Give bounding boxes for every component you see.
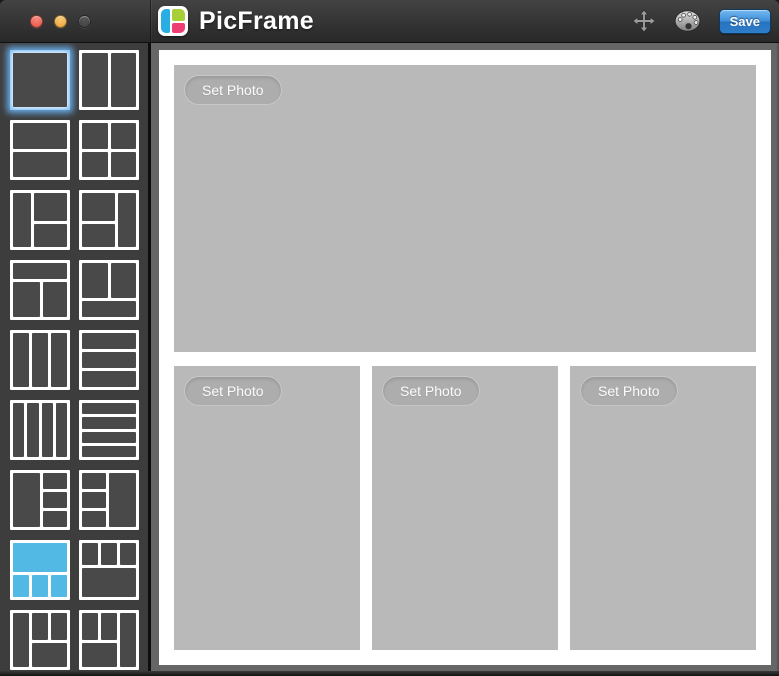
layout-cell	[82, 152, 108, 178]
layout-cell	[82, 417, 136, 428]
layout-cell	[34, 193, 67, 221]
layout-cell	[42, 403, 53, 457]
layout-cell	[109, 473, 136, 527]
layout-cell	[82, 543, 98, 565]
layout-cell	[82, 643, 117, 667]
layout-cell	[34, 224, 67, 247]
layout-cell	[82, 193, 115, 221]
layout-cell	[13, 543, 67, 572]
titlebar-divider	[150, 0, 151, 42]
layout-cell	[43, 282, 67, 317]
layout-cell	[13, 53, 67, 107]
layout-cell	[13, 193, 31, 247]
layout-thumbnail-three-rows[interactable]	[79, 330, 139, 390]
picframe-window: PicFrame	[0, 0, 779, 676]
logo-bottom-right-segment	[172, 23, 185, 33]
layout-cell	[13, 123, 67, 149]
bottom-placeholder-row: Set Photo Set Photo Set Photo	[174, 366, 756, 650]
layout-cell	[43, 492, 67, 508]
layout-cell	[82, 473, 106, 489]
move-icon	[632, 9, 656, 33]
layout-cell	[51, 613, 67, 640]
move-resize-button[interactable]	[629, 6, 659, 36]
layout-thumbnail-top-two-columns-bottom-bar[interactable]	[79, 260, 139, 320]
layout-cell	[82, 511, 106, 527]
layout-cell	[13, 473, 40, 527]
layout-cell	[82, 568, 136, 597]
logo-left-segment	[161, 9, 170, 33]
layout-cell	[32, 333, 48, 387]
color-palette-button[interactable]	[673, 6, 703, 36]
layout-cell	[43, 473, 67, 489]
app-title: PicFrame	[199, 7, 314, 36]
layout-cell	[13, 403, 24, 457]
layout-cell	[111, 152, 137, 178]
layout-thumbnail-left-column-top-pair-bottom-bar[interactable]	[10, 610, 70, 670]
palette-icon	[674, 9, 701, 33]
layout-thumbnail-top-three-columns-bottom-panel[interactable]	[79, 540, 139, 600]
layout-cell	[27, 403, 38, 457]
set-photo-button[interactable]: Set Photo	[184, 75, 282, 105]
layout-cell	[32, 613, 48, 640]
layout-cell	[82, 446, 136, 457]
close-button[interactable]	[30, 15, 43, 28]
traffic-lights	[30, 15, 91, 28]
layout-cell	[51, 575, 67, 597]
minimize-button[interactable]	[54, 15, 67, 28]
layout-cell	[82, 371, 136, 387]
layout-cell	[13, 282, 40, 317]
layout-cell	[111, 53, 137, 107]
layout-thumbnail-top-pair-right-column-bottom-bar[interactable]	[79, 610, 139, 670]
layout-cell	[118, 193, 136, 247]
layout-thumbnail-four-columns[interactable]	[10, 400, 70, 460]
set-photo-button[interactable]: Set Photo	[382, 376, 480, 406]
layout-thumbnail-two-columns[interactable]	[79, 50, 139, 110]
layout-cell	[82, 301, 136, 317]
layout-cell	[82, 224, 115, 247]
layout-thumbnail-single[interactable]	[10, 50, 70, 110]
photo-placeholder-bottom-center[interactable]: Set Photo	[372, 366, 558, 650]
photo-placeholder-top[interactable]: Set Photo	[174, 65, 756, 352]
layout-sidebar[interactable]	[0, 43, 151, 676]
layout-cell	[13, 263, 67, 279]
layout-cell	[82, 432, 136, 443]
logo-top-right-segment	[172, 9, 185, 21]
collage-canvas: Set Photo Set Photo Set Photo Set Photo	[159, 50, 771, 665]
main-area: Set Photo Set Photo Set Photo Set Photo	[151, 43, 779, 676]
layout-thumbnail-top-panel-bottom-three-columns[interactable]	[10, 540, 70, 600]
layout-cell	[32, 575, 48, 597]
layout-cell	[82, 333, 136, 349]
layout-thumbnail-left-panel-right-three-rows[interactable]	[10, 470, 70, 530]
layout-cell	[13, 152, 67, 178]
layout-list	[10, 50, 148, 670]
layout-thumbnail-left-three-rows-right-panel[interactable]	[79, 470, 139, 530]
layout-cell	[82, 123, 108, 149]
layout-cell	[120, 613, 136, 667]
layout-thumbnail-left-column-right-two-rows[interactable]	[10, 190, 70, 250]
layout-cell	[82, 263, 108, 298]
layout-thumbnail-three-columns[interactable]	[10, 330, 70, 390]
layout-thumbnail-left-two-rows-right-column[interactable]	[79, 190, 139, 250]
layout-cell	[56, 403, 67, 457]
layout-cell	[82, 613, 98, 640]
layout-cell	[13, 613, 29, 667]
layout-cell	[51, 333, 67, 387]
title-bar[interactable]: PicFrame	[0, 0, 779, 43]
layout-cell	[82, 403, 136, 414]
layout-cell	[82, 53, 108, 107]
photo-placeholder-bottom-left[interactable]: Set Photo	[174, 366, 360, 650]
save-button[interactable]: Save	[719, 9, 771, 34]
layout-thumbnail-top-bar-bottom-two-columns[interactable]	[10, 260, 70, 320]
photo-placeholder-bottom-right[interactable]: Set Photo	[570, 366, 756, 650]
layout-cell	[82, 492, 106, 508]
layout-thumbnail-four-rows[interactable]	[79, 400, 139, 460]
layout-thumbnail-two-rows[interactable]	[10, 120, 70, 180]
layout-cell	[120, 543, 136, 565]
zoom-button	[78, 15, 91, 28]
picframe-logo-icon	[158, 6, 188, 36]
layout-cell	[32, 643, 67, 667]
set-photo-button[interactable]: Set Photo	[184, 376, 282, 406]
layout-cell	[43, 511, 67, 527]
layout-cell	[101, 543, 117, 565]
layout-thumbnail-grid-2x2[interactable]	[79, 120, 139, 180]
layout-cell	[13, 333, 29, 387]
layout-cell	[101, 613, 117, 640]
layout-cell	[82, 352, 136, 368]
layout-cell	[111, 263, 137, 298]
layout-cell	[13, 575, 29, 597]
layout-cell	[111, 123, 137, 149]
set-photo-button[interactable]: Set Photo	[580, 376, 678, 406]
